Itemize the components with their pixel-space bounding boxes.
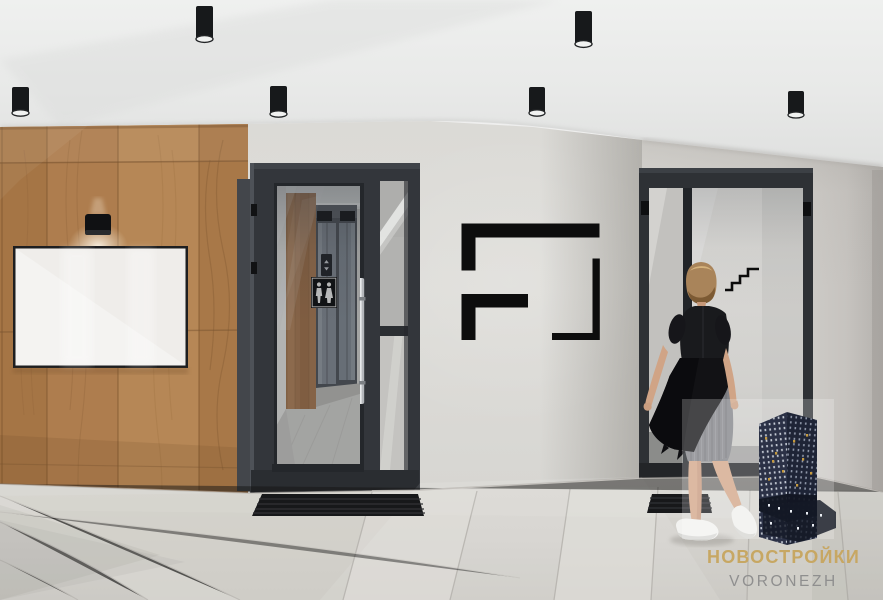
svg-text:НОВОСТРОЙКИ: НОВОСТРОЙКИ: [707, 546, 860, 567]
svg-text:VORONEZH: VORONEZH: [729, 573, 838, 590]
